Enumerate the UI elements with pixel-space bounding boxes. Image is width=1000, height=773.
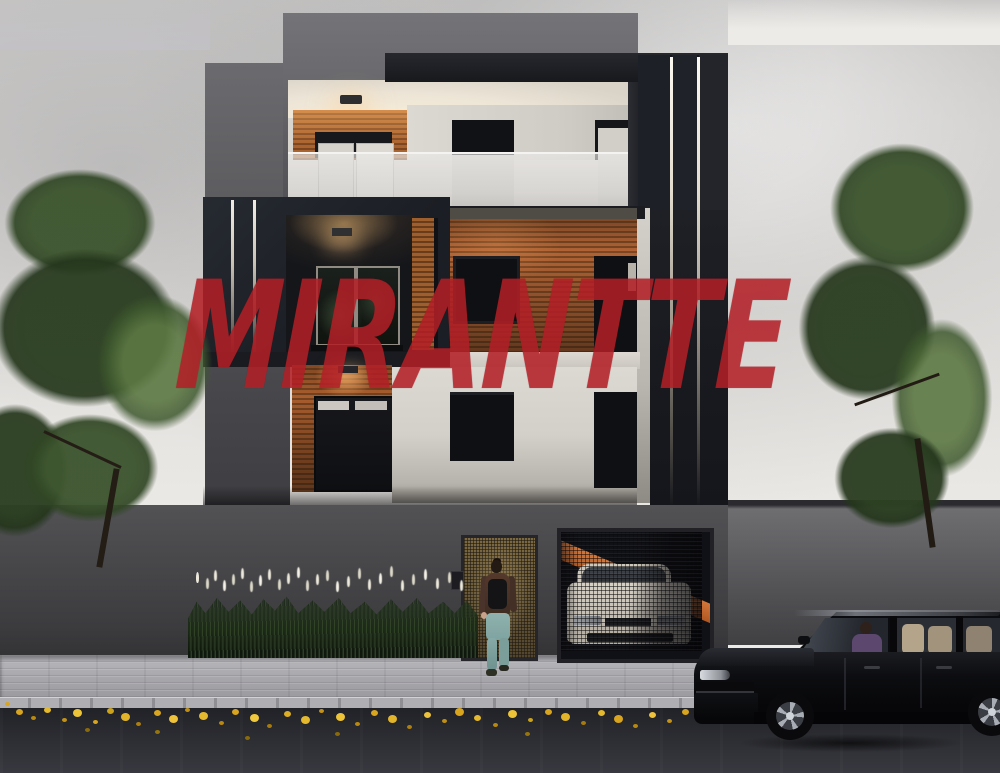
right-tree (772, 108, 1000, 548)
car-rear-seat (928, 626, 952, 654)
grass-plumes (196, 572, 199, 583)
car-door-handle (936, 666, 952, 669)
building-base-shadow (203, 486, 637, 505)
garage-mesh-screen (561, 532, 702, 651)
car-door-seam (844, 658, 846, 710)
car-hood (698, 648, 814, 666)
car-door-seam (920, 658, 922, 708)
car-grille (696, 682, 754, 693)
driver-head (860, 622, 872, 634)
car-side-mirror (798, 636, 810, 644)
pedestrian-shoe (499, 665, 509, 671)
pedestrian-leg (499, 638, 509, 667)
fallen-leaves (5, 702, 10, 706)
top-floor-balcony (288, 80, 630, 208)
pedestrian (478, 560, 518, 678)
right-facade-fins (638, 55, 728, 212)
foliage-blob (812, 408, 972, 548)
scene-canvas: MIRANTTE (0, 0, 1000, 773)
car-rear-seat (902, 624, 924, 654)
car-rear-seat (966, 626, 992, 654)
balcony-ceiling-light (340, 95, 362, 104)
pedestrian-backpack (488, 579, 507, 609)
pedestrian-leg (487, 638, 497, 670)
watermark-text: MIRANTTE (172, 262, 828, 412)
pedestrian-shoe (486, 669, 497, 676)
pedestrian-head (491, 560, 502, 573)
black-car (694, 608, 1000, 758)
car-front-bumper (694, 693, 758, 719)
garage-gate (557, 528, 714, 663)
car-door-handle (864, 666, 880, 669)
car-roof-highlight (794, 610, 1000, 616)
pedestrian-jeans (486, 613, 510, 640)
recess-ceiling-light (332, 228, 352, 236)
intercom-panel (451, 571, 464, 590)
wheel-hub (786, 712, 794, 720)
car-headlight (700, 670, 730, 680)
car-front-wheel (766, 692, 814, 740)
wheel-hub (988, 708, 996, 716)
